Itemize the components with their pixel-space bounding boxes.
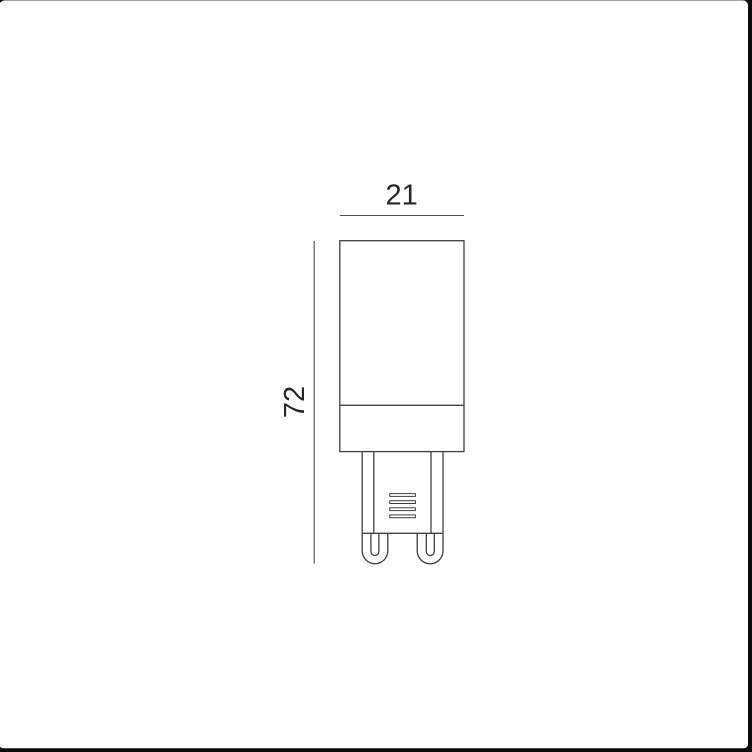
svg-text:21: 21 xyxy=(385,180,417,212)
svg-text:72: 72 xyxy=(279,386,311,418)
